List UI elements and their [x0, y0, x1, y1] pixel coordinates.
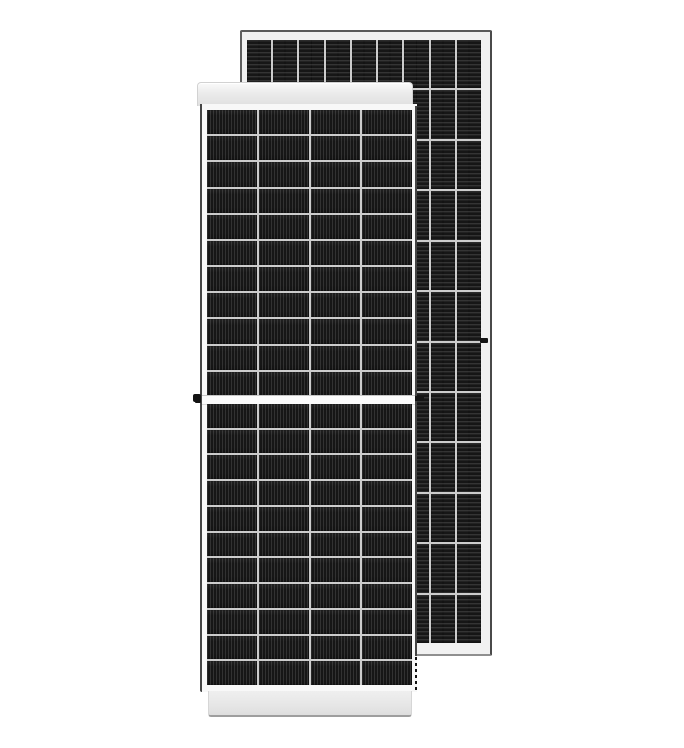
solar-cell-front	[311, 267, 361, 291]
solar-cell-front	[259, 661, 309, 685]
solar-cell-front	[311, 319, 361, 343]
solar-cell-front	[207, 372, 257, 396]
solar-cell-front	[311, 372, 361, 396]
solar-cell-front	[362, 558, 412, 582]
solar-cell-front	[207, 481, 257, 505]
solar-cell-front	[259, 610, 309, 634]
solar-cell-front	[259, 267, 309, 291]
solar-cell-front	[362, 162, 412, 186]
solar-cell-back	[457, 343, 481, 391]
solar-cell-front	[362, 293, 412, 317]
solar-cell-front	[362, 610, 412, 634]
solar-cell-front	[362, 404, 412, 428]
solar-cell-front	[207, 404, 257, 428]
solar-cell-front	[362, 267, 412, 291]
solar-cell-front	[311, 558, 361, 582]
solar-cell-front	[207, 162, 257, 186]
solar-cell-back	[457, 141, 481, 189]
front-panel-right-edge	[415, 106, 417, 656]
solar-cell-front	[362, 584, 412, 608]
solar-cell-front	[362, 319, 412, 343]
front-panel-upper-cell-grid	[207, 110, 412, 396]
frame-joint-mark	[480, 338, 488, 343]
solar-cell-front	[259, 215, 309, 239]
solar-cell-front	[311, 584, 361, 608]
solar-cell-front	[207, 661, 257, 685]
solar-cell-front	[259, 584, 309, 608]
solar-cell-back	[457, 40, 481, 88]
solar-cell-front	[207, 558, 257, 582]
solar-cell-front	[259, 241, 309, 265]
solar-cell-front	[259, 319, 309, 343]
solar-cell-front	[207, 293, 257, 317]
solar-cell-front	[259, 430, 309, 454]
solar-cell-front	[311, 661, 361, 685]
solar-cell-back	[457, 292, 481, 340]
solar-cell-front	[311, 162, 361, 186]
front-panel-bottom-frame	[208, 691, 412, 717]
front-panel-body	[200, 104, 417, 692]
solar-cell-front	[259, 136, 309, 160]
solar-cell-back	[431, 595, 455, 643]
solar-cell-front	[362, 241, 412, 265]
solar-cell-back	[431, 292, 455, 340]
solar-cell-front	[259, 533, 309, 557]
front-panel-top-frame	[197, 82, 413, 106]
front-panel-lower-cell-grid	[207, 404, 412, 685]
solar-cell-front	[259, 636, 309, 660]
solar-cell-back	[457, 544, 481, 592]
solar-cell-back	[457, 595, 481, 643]
solar-cell-front	[207, 584, 257, 608]
solar-cell-front	[259, 293, 309, 317]
solar-cell-front	[362, 189, 412, 213]
solar-cell-front	[311, 430, 361, 454]
dashed-edge-artifact	[415, 657, 417, 693]
solar-cell-front	[207, 507, 257, 531]
solar-cell-front	[259, 455, 309, 479]
solar-cell-front	[259, 507, 309, 531]
solar-cell-front	[311, 533, 361, 557]
solar-cell-front	[259, 189, 309, 213]
solar-cell-front	[311, 293, 361, 317]
solar-cell-front	[311, 481, 361, 505]
solar-cell-front	[362, 215, 412, 239]
solar-cell-front	[362, 636, 412, 660]
divider-shadow-dash	[415, 396, 424, 401]
solar-cell-front	[362, 507, 412, 531]
solar-cell-front	[311, 507, 361, 531]
solar-cell-back	[431, 90, 455, 138]
solar-cell-back	[457, 90, 481, 138]
solar-cell-back	[457, 242, 481, 290]
solar-cell-front	[311, 346, 361, 370]
solar-cell-front	[207, 267, 257, 291]
solar-cell-front	[311, 189, 361, 213]
solar-cell-front	[259, 110, 309, 134]
solar-cell-front	[362, 533, 412, 557]
solar-cell-front	[259, 372, 309, 396]
solar-cell-back	[431, 393, 455, 441]
solar-cell-front	[259, 346, 309, 370]
solar-cell-front	[259, 481, 309, 505]
solar-cell-front	[362, 481, 412, 505]
solar-cell-back	[431, 141, 455, 189]
solar-cell-front	[207, 136, 257, 160]
solar-cell-front	[311, 241, 361, 265]
solar-cell-back	[457, 393, 481, 441]
solar-cell-front	[207, 346, 257, 370]
solar-cell-front	[207, 533, 257, 557]
solar-cell-front	[207, 189, 257, 213]
grounding-screw-mark	[193, 394, 201, 402]
center-divider	[202, 396, 417, 404]
solar-cell-back	[431, 40, 455, 88]
solar-cell-front	[207, 241, 257, 265]
solar-cell-front	[362, 372, 412, 396]
solar-cell-front	[207, 110, 257, 134]
solar-cell-front	[207, 430, 257, 454]
solar-cell-back	[431, 544, 455, 592]
solar-cell-front	[362, 346, 412, 370]
solar-cell-front	[311, 404, 361, 428]
solar-cell-front	[207, 215, 257, 239]
solar-cell-front	[311, 136, 361, 160]
solar-cell-back	[431, 343, 455, 391]
solar-cell-front	[311, 215, 361, 239]
solar-cell-back	[431, 494, 455, 542]
solar-cell-back	[457, 494, 481, 542]
solar-cell-front	[207, 610, 257, 634]
solar-cell-front	[259, 558, 309, 582]
solar-panel-product-photo	[0, 0, 684, 748]
solar-cell-back	[431, 242, 455, 290]
solar-cell-front	[207, 319, 257, 343]
solar-cell-front	[311, 110, 361, 134]
solar-cell-front	[311, 455, 361, 479]
solar-cell-front	[362, 136, 412, 160]
solar-cell-back	[431, 191, 455, 239]
solar-cell-front	[362, 661, 412, 685]
solar-cell-front	[259, 162, 309, 186]
solar-cell-front	[311, 610, 361, 634]
solar-cell-front	[362, 455, 412, 479]
solar-cell-back	[457, 191, 481, 239]
solar-cell-front	[311, 636, 361, 660]
solar-cell-front	[207, 455, 257, 479]
solar-cell-front	[207, 636, 257, 660]
solar-cell-front	[259, 404, 309, 428]
solar-cell-front	[362, 430, 412, 454]
solar-cell-back	[431, 443, 455, 491]
solar-cell-front	[362, 110, 412, 134]
solar-cell-back	[457, 443, 481, 491]
